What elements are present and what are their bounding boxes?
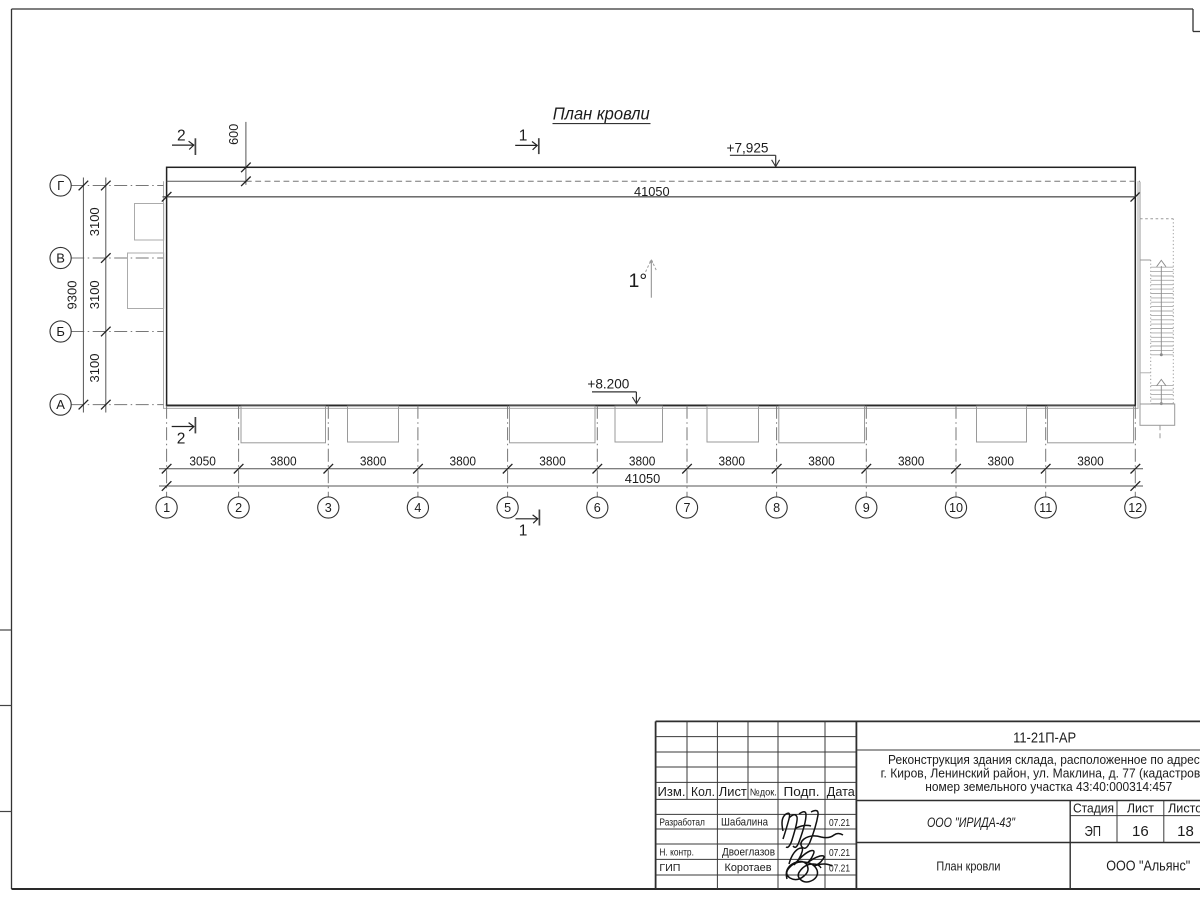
svg-text:12: 12 — [1128, 501, 1142, 515]
svg-text:Кол.: Кол. — [691, 784, 715, 799]
svg-text:1: 1 — [519, 127, 528, 144]
svg-text:+8.200: +8.200 — [587, 377, 629, 392]
svg-text:В: В — [56, 251, 65, 266]
svg-text:1°: 1° — [628, 270, 647, 292]
svg-text:3100: 3100 — [87, 354, 102, 383]
svg-text:11-21П-АР: 11-21П-АР — [1013, 730, 1076, 747]
svg-text:41050: 41050 — [634, 184, 670, 199]
svg-text:3050: 3050 — [189, 455, 216, 469]
svg-text:2: 2 — [177, 127, 186, 144]
svg-text:3800: 3800 — [450, 455, 477, 469]
svg-text:ЭП: ЭП — [1085, 823, 1102, 840]
svg-text:3800: 3800 — [629, 455, 656, 469]
svg-text:3800: 3800 — [988, 455, 1015, 469]
svg-text:5: 5 — [504, 501, 511, 515]
svg-text:Б: Б — [56, 324, 65, 339]
svg-text:ООО "Альянс": ООО "Альянс" — [1106, 858, 1190, 875]
svg-text:Лист: Лист — [1127, 801, 1154, 816]
svg-text:ГИП: ГИП — [659, 862, 680, 874]
svg-text:3100: 3100 — [87, 207, 102, 236]
svg-text:+7,925: +7,925 — [727, 140, 769, 155]
svg-text:Подп.: Подп. — [784, 784, 820, 799]
svg-text:6: 6 — [594, 501, 601, 515]
svg-text:600: 600 — [227, 124, 241, 145]
svg-text:07.21: 07.21 — [829, 862, 850, 874]
svg-text:Двоеглазов: Двоеглазов — [722, 847, 775, 859]
svg-text:2: 2 — [235, 501, 242, 515]
svg-text:3800: 3800 — [360, 455, 387, 469]
svg-text:3800: 3800 — [808, 455, 835, 469]
svg-text:41050: 41050 — [625, 471, 661, 486]
svg-text:4: 4 — [414, 501, 421, 515]
svg-text:Стадия: Стадия — [1073, 801, 1114, 816]
svg-text:7: 7 — [683, 501, 690, 515]
svg-text:16: 16 — [1132, 823, 1149, 840]
svg-text:Шабалина: Шабалина — [721, 817, 769, 829]
svg-text:8: 8 — [773, 501, 780, 515]
svg-text:10: 10 — [949, 501, 963, 515]
svg-text:План кровли: План кровли — [553, 104, 650, 124]
svg-text:ООО "ИРИДА-43": ООО "ИРИДА-43" — [927, 815, 1016, 830]
svg-text:Дата: Дата — [827, 784, 856, 799]
svg-text:Г: Г — [57, 178, 64, 193]
svg-text:План кровли: План кровли — [936, 859, 1000, 874]
svg-text:номер земельного участка 43:40: номер земельного участка 43:40:000314:45… — [925, 779, 1172, 794]
svg-text:9300: 9300 — [65, 281, 80, 310]
svg-text:Коротаев: Коротаев — [725, 862, 772, 874]
svg-text:А: А — [56, 397, 65, 412]
svg-text:1: 1 — [519, 522, 528, 539]
svg-text:07.21: 07.21 — [829, 847, 850, 859]
svg-text:07.21: 07.21 — [829, 817, 850, 829]
svg-text:3800: 3800 — [1077, 455, 1104, 469]
svg-text:3100: 3100 — [87, 280, 102, 309]
svg-text:Изм.: Изм. — [658, 784, 686, 799]
svg-text:3: 3 — [325, 501, 332, 515]
svg-text:3800: 3800 — [719, 455, 746, 469]
svg-text:18: 18 — [1177, 823, 1194, 840]
svg-text:Лист: Лист — [719, 784, 747, 799]
svg-text:№док.: №док. — [750, 787, 777, 798]
svg-text:2: 2 — [177, 430, 186, 447]
svg-text:11: 11 — [1039, 501, 1052, 515]
svg-text:3800: 3800 — [898, 455, 925, 469]
svg-text:Н. контр.: Н. контр. — [659, 848, 694, 859]
svg-text:9: 9 — [863, 501, 870, 515]
svg-text:1: 1 — [163, 501, 170, 515]
svg-text:3800: 3800 — [270, 455, 297, 469]
svg-text:3800: 3800 — [539, 455, 566, 469]
svg-text:Листов: Листов — [1168, 801, 1200, 816]
svg-text:Разработал: Разработал — [659, 817, 705, 829]
